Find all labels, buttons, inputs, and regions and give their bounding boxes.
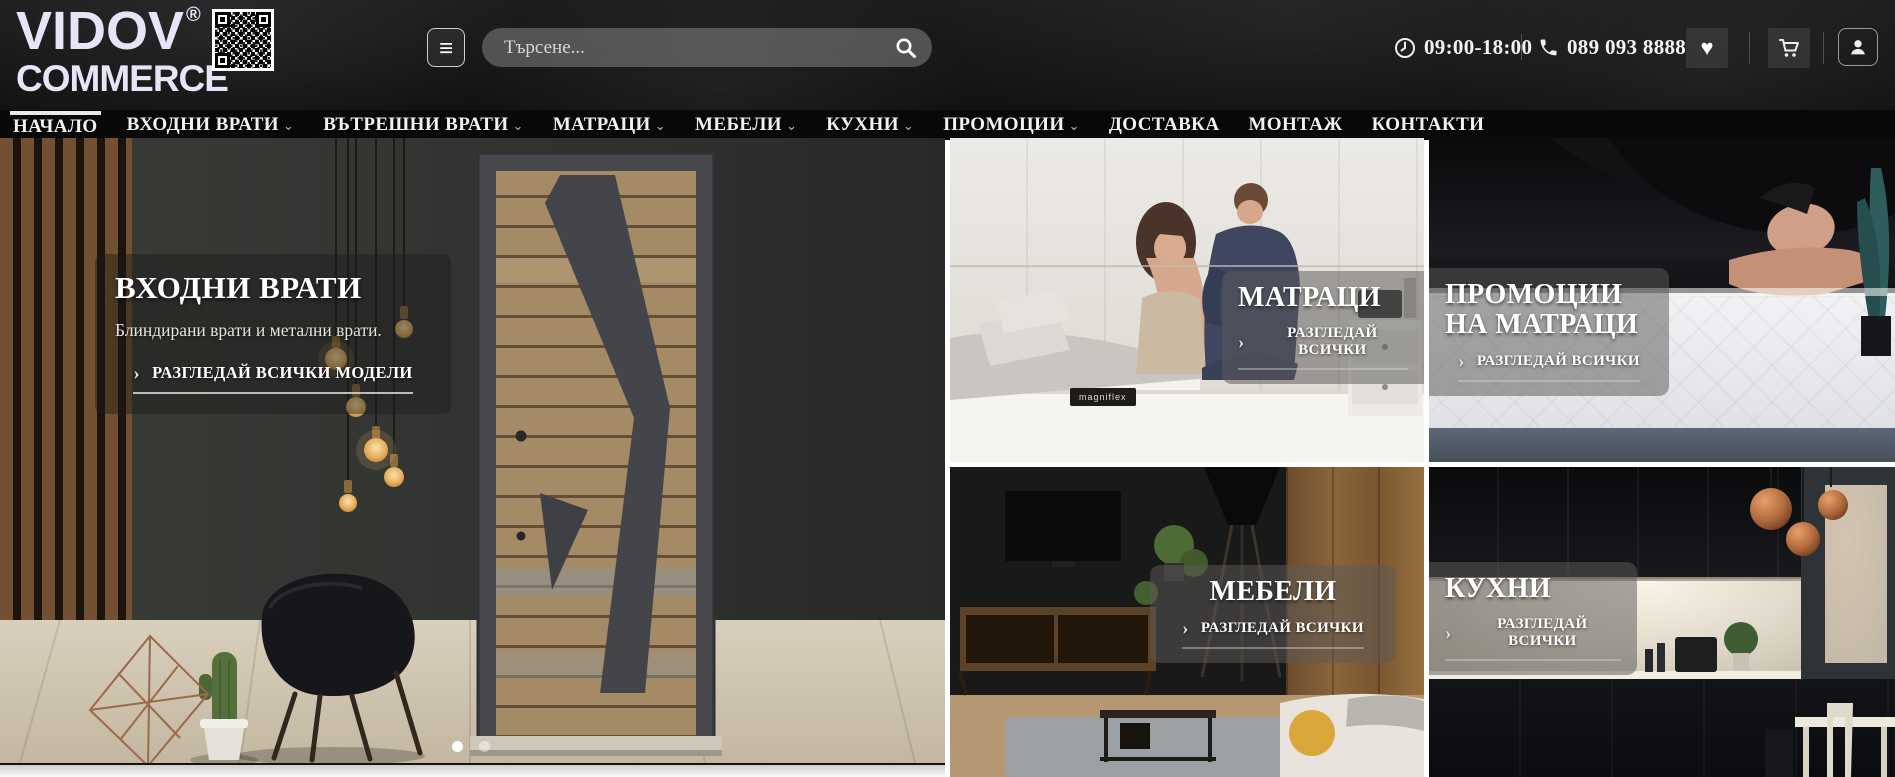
- arrow-right-icon: ›: [1182, 619, 1189, 638]
- tile-cta-kitchens[interactable]: ›РАЗГЛЕДАЙ ВСИЧКИ: [1445, 616, 1621, 661]
- chevron-down-icon: ⌄: [283, 118, 294, 133]
- nav-item-furniture[interactable]: МЕБЕЛИ⌄: [695, 110, 797, 141]
- cta-underline: [1182, 647, 1364, 649]
- hero-cta-label: РАЗГЛЕДАЙ ВСИЧКИ МОДЕЛИ: [152, 363, 413, 383]
- hamburger-icon: ≡: [439, 35, 453, 62]
- hero-cta-button[interactable]: ›РАЗГЛЕДАЙ ВСИЧКИ МОДЕЛИ: [133, 363, 412, 394]
- site-header: VIDOV® COMMERCE ≡ 09:00-18:00 089 093 88…: [0, 0, 1895, 110]
- page: VIDOV® COMMERCE ≡ 09:00-18:00 089 093 88…: [0, 0, 1895, 777]
- phone-number-text: 089 093 8888: [1567, 35, 1686, 60]
- slider-dots: [452, 741, 490, 752]
- nav-item-promotions[interactable]: ПРОМОЦИИ⌄: [943, 110, 1080, 141]
- dining-set-art: [1765, 703, 1895, 777]
- slider-dot-1[interactable]: [452, 741, 463, 752]
- nav-label: НАЧАЛО: [13, 116, 98, 137]
- qr-finder-icon: [215, 53, 230, 68]
- search-icon: [894, 36, 918, 60]
- hero-text-panel: ВХОДНИ ВРАТИ Блиндирани врати и метални …: [95, 254, 451, 414]
- clock-icon: [1394, 37, 1416, 59]
- user-icon: [1847, 36, 1869, 58]
- nav-label: МОНТАЖ: [1248, 114, 1342, 135]
- slider-dot-2[interactable]: [479, 741, 490, 752]
- arrow-right-icon: ›: [1238, 333, 1245, 352]
- nav-label: КОНТАКТИ: [1372, 114, 1485, 135]
- page-below-strip: [0, 765, 945, 777]
- nav-label: ВЪТРЕШНИ ВРАТИ: [323, 114, 508, 135]
- nav-item-delivery[interactable]: ДОСТАВКА: [1109, 110, 1220, 140]
- account-button[interactable]: [1838, 28, 1878, 66]
- nav-item-contacts[interactable]: КОНТАКТИ: [1372, 110, 1485, 140]
- tile-cta-mattresses[interactable]: ›РАЗГЛЕДАЙ ВСИЧКИ: [1238, 325, 1408, 370]
- nav-label: ВХОДНИ ВРАТИ: [127, 114, 279, 135]
- working-hours-text: 09:00-18:00: [1424, 35, 1532, 60]
- arrow-right-icon: ›: [133, 364, 140, 383]
- tile-cta-mattress-promos[interactable]: ›РАЗГЛЕДАЙ ВСИЧКИ: [1458, 352, 1640, 382]
- phone-icon: [1538, 37, 1559, 58]
- cta-underline: [1238, 368, 1408, 370]
- hero-artwork: [0, 138, 945, 763]
- divider: [1823, 32, 1824, 64]
- cta-underline: [1458, 380, 1640, 382]
- cta-underline: [133, 392, 412, 394]
- chevron-down-icon: ⌄: [786, 118, 797, 133]
- search-button[interactable]: [886, 36, 932, 60]
- working-hours: 09:00-18:00: [1394, 28, 1532, 67]
- logo-line2: COMMERCE: [16, 60, 228, 97]
- cart-icon: [1777, 36, 1801, 60]
- divider: [1749, 32, 1750, 64]
- nav-label: ДОСТАВКА: [1109, 114, 1220, 135]
- tile-title: МЕБЕЛИ: [1166, 577, 1380, 607]
- cta-underline: [1445, 659, 1621, 661]
- search-input[interactable]: [482, 37, 886, 59]
- chevron-down-icon: ⌄: [903, 118, 914, 133]
- nav-item-interior-doors[interactable]: ВЪТРЕШНИ ВРАТИ⌄: [323, 110, 524, 141]
- tile-cta-label: РАЗГЛЕДАЙ ВСИЧКИ: [1477, 353, 1640, 370]
- nav-label: КУХНИ: [826, 114, 899, 135]
- divider: [1521, 34, 1522, 60]
- entry-door-art: [470, 153, 722, 756]
- tile-cta-furniture[interactable]: ›РАЗГЛЕДАЙ ВСИЧКИ: [1182, 619, 1364, 649]
- chevron-down-icon: ⌄: [513, 118, 524, 133]
- logo-line1: VIDOV: [16, 1, 184, 61]
- nav-label: МАТРАЦИ: [553, 114, 651, 135]
- hero-slide-entry-doors[interactable]: ВХОДНИ ВРАТИ Блиндирани врати и метални …: [0, 138, 945, 765]
- arrow-right-icon: ›: [1458, 352, 1465, 371]
- category-tile-furniture[interactable]: МЕБЕЛИ ›РАЗГЛЕДАЙ ВСИЧКИ: [950, 467, 1424, 777]
- nav-label: ПРОМОЦИИ: [943, 114, 1064, 135]
- nav-item-kitchens[interactable]: КУХНИ⌄: [826, 110, 914, 141]
- category-tile-kitchens[interactable]: КУХНИ ›РАЗГЛЕДАЙ ВСИЧКИ: [1429, 467, 1895, 777]
- heart-icon: ♥: [1700, 35, 1713, 61]
- sideboard-art: [960, 607, 1156, 695]
- cart-button[interactable]: [1768, 28, 1810, 68]
- qr-finder-icon: [215, 12, 230, 27]
- category-tile-mattress-promos[interactable]: ПРОМОЦИИ НА МАТРАЦИ ›РАЗГЛЕДАЙ ВСИЧКИ: [1429, 138, 1895, 462]
- main-nav: НАЧАЛО ВХОДНИ ВРАТИ⌄ ВЪТРЕШНИ ВРАТИ⌄ МАТ…: [0, 110, 1895, 140]
- hero-title: ВХОДНИ ВРАТИ: [115, 270, 431, 306]
- tile-cta-label: РАЗГЛЕДАЙ ВСИЧКИ: [1464, 616, 1621, 650]
- category-tile-mattresses[interactable]: magniflex МАТРАЦИ ›РАЗГЛЕДАЙ ВСИЧКИ: [950, 138, 1424, 462]
- tile-overlay-mattress-promos: ПРОМОЦИИ НА МАТРАЦИ ›РАЗГЛЕДАЙ ВСИЧКИ: [1429, 268, 1669, 396]
- tile-title: КУХНИ: [1445, 574, 1621, 604]
- nav-label: МЕБЕЛИ: [695, 114, 782, 135]
- mattress-brand-tag: magniflex: [1070, 388, 1136, 406]
- counter-items-art: [1645, 622, 1758, 672]
- logo[interactable]: VIDOV® COMMERCE: [16, 4, 228, 97]
- sofa-art: [1280, 694, 1424, 777]
- arrow-right-icon: ›: [1445, 624, 1452, 643]
- registered-mark: ®: [186, 4, 201, 26]
- nav-item-entry-doors[interactable]: ВХОДНИ ВРАТИ⌄: [127, 110, 295, 141]
- tile-title: ПРОМОЦИИ НА МАТРАЦИ: [1445, 280, 1653, 340]
- chevron-down-icon: ⌄: [655, 118, 666, 133]
- wishlist-button[interactable]: ♥: [1686, 28, 1728, 68]
- hero-subtitle: Блиндирани врати и метални врати.: [115, 320, 431, 341]
- chevron-down-icon: ⌄: [1069, 118, 1080, 133]
- tile-overlay-mattresses: МАТРАЦИ ›РАЗГЛЕДАЙ ВСИЧКИ: [1222, 271, 1424, 384]
- tile-overlay-furniture: МЕБЕЛИ ›РАЗГЛЕДАЙ ВСИЧКИ: [1150, 565, 1396, 663]
- nav-item-mattresses[interactable]: МАТРАЦИ⌄: [553, 110, 666, 141]
- phone-number[interactable]: 089 093 8888: [1538, 28, 1686, 67]
- tile-overlay-kitchens: КУХНИ ›РАЗГЛЕДАЙ ВСИЧКИ: [1429, 562, 1637, 675]
- search-bar: [482, 28, 932, 67]
- tv-art: [1005, 491, 1121, 567]
- qr-finder-icon: [256, 12, 271, 27]
- nav-item-home[interactable]: НАЧАЛО: [13, 110, 98, 140]
- menu-button[interactable]: ≡: [427, 28, 465, 67]
- tile-cta-label: РАЗГЛЕДАЙ ВСИЧКИ: [1201, 620, 1364, 637]
- tile-title: МАТРАЦИ: [1238, 283, 1408, 313]
- tile-cta-label: РАЗГЛЕДАЙ ВСИЧКИ: [1257, 325, 1408, 359]
- qr-code: [212, 9, 274, 71]
- nav-item-installation[interactable]: МОНТАЖ: [1248, 110, 1342, 140]
